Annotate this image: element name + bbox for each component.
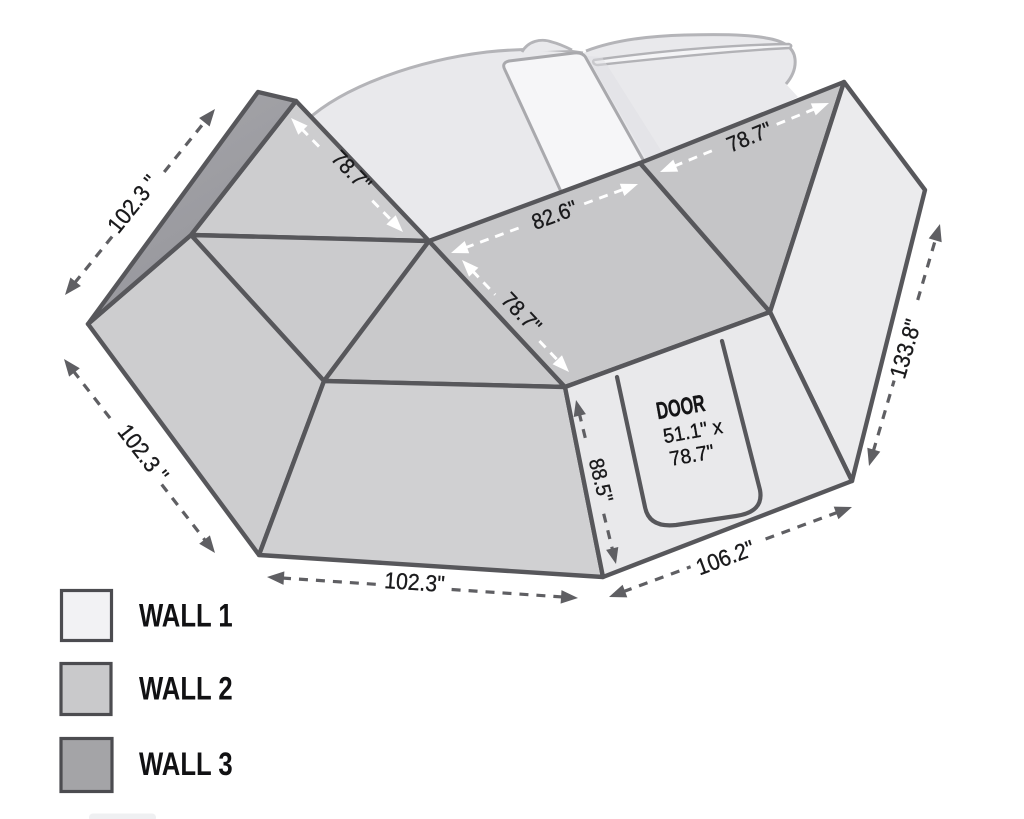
- svg-text:WALL 1: WALL 1: [139, 598, 233, 635]
- svg-text:WALL 2: WALL 2: [139, 671, 233, 708]
- svg-text:102.3": 102.3": [384, 567, 446, 597]
- svg-text:WALL 3: WALL 3: [139, 746, 233, 783]
